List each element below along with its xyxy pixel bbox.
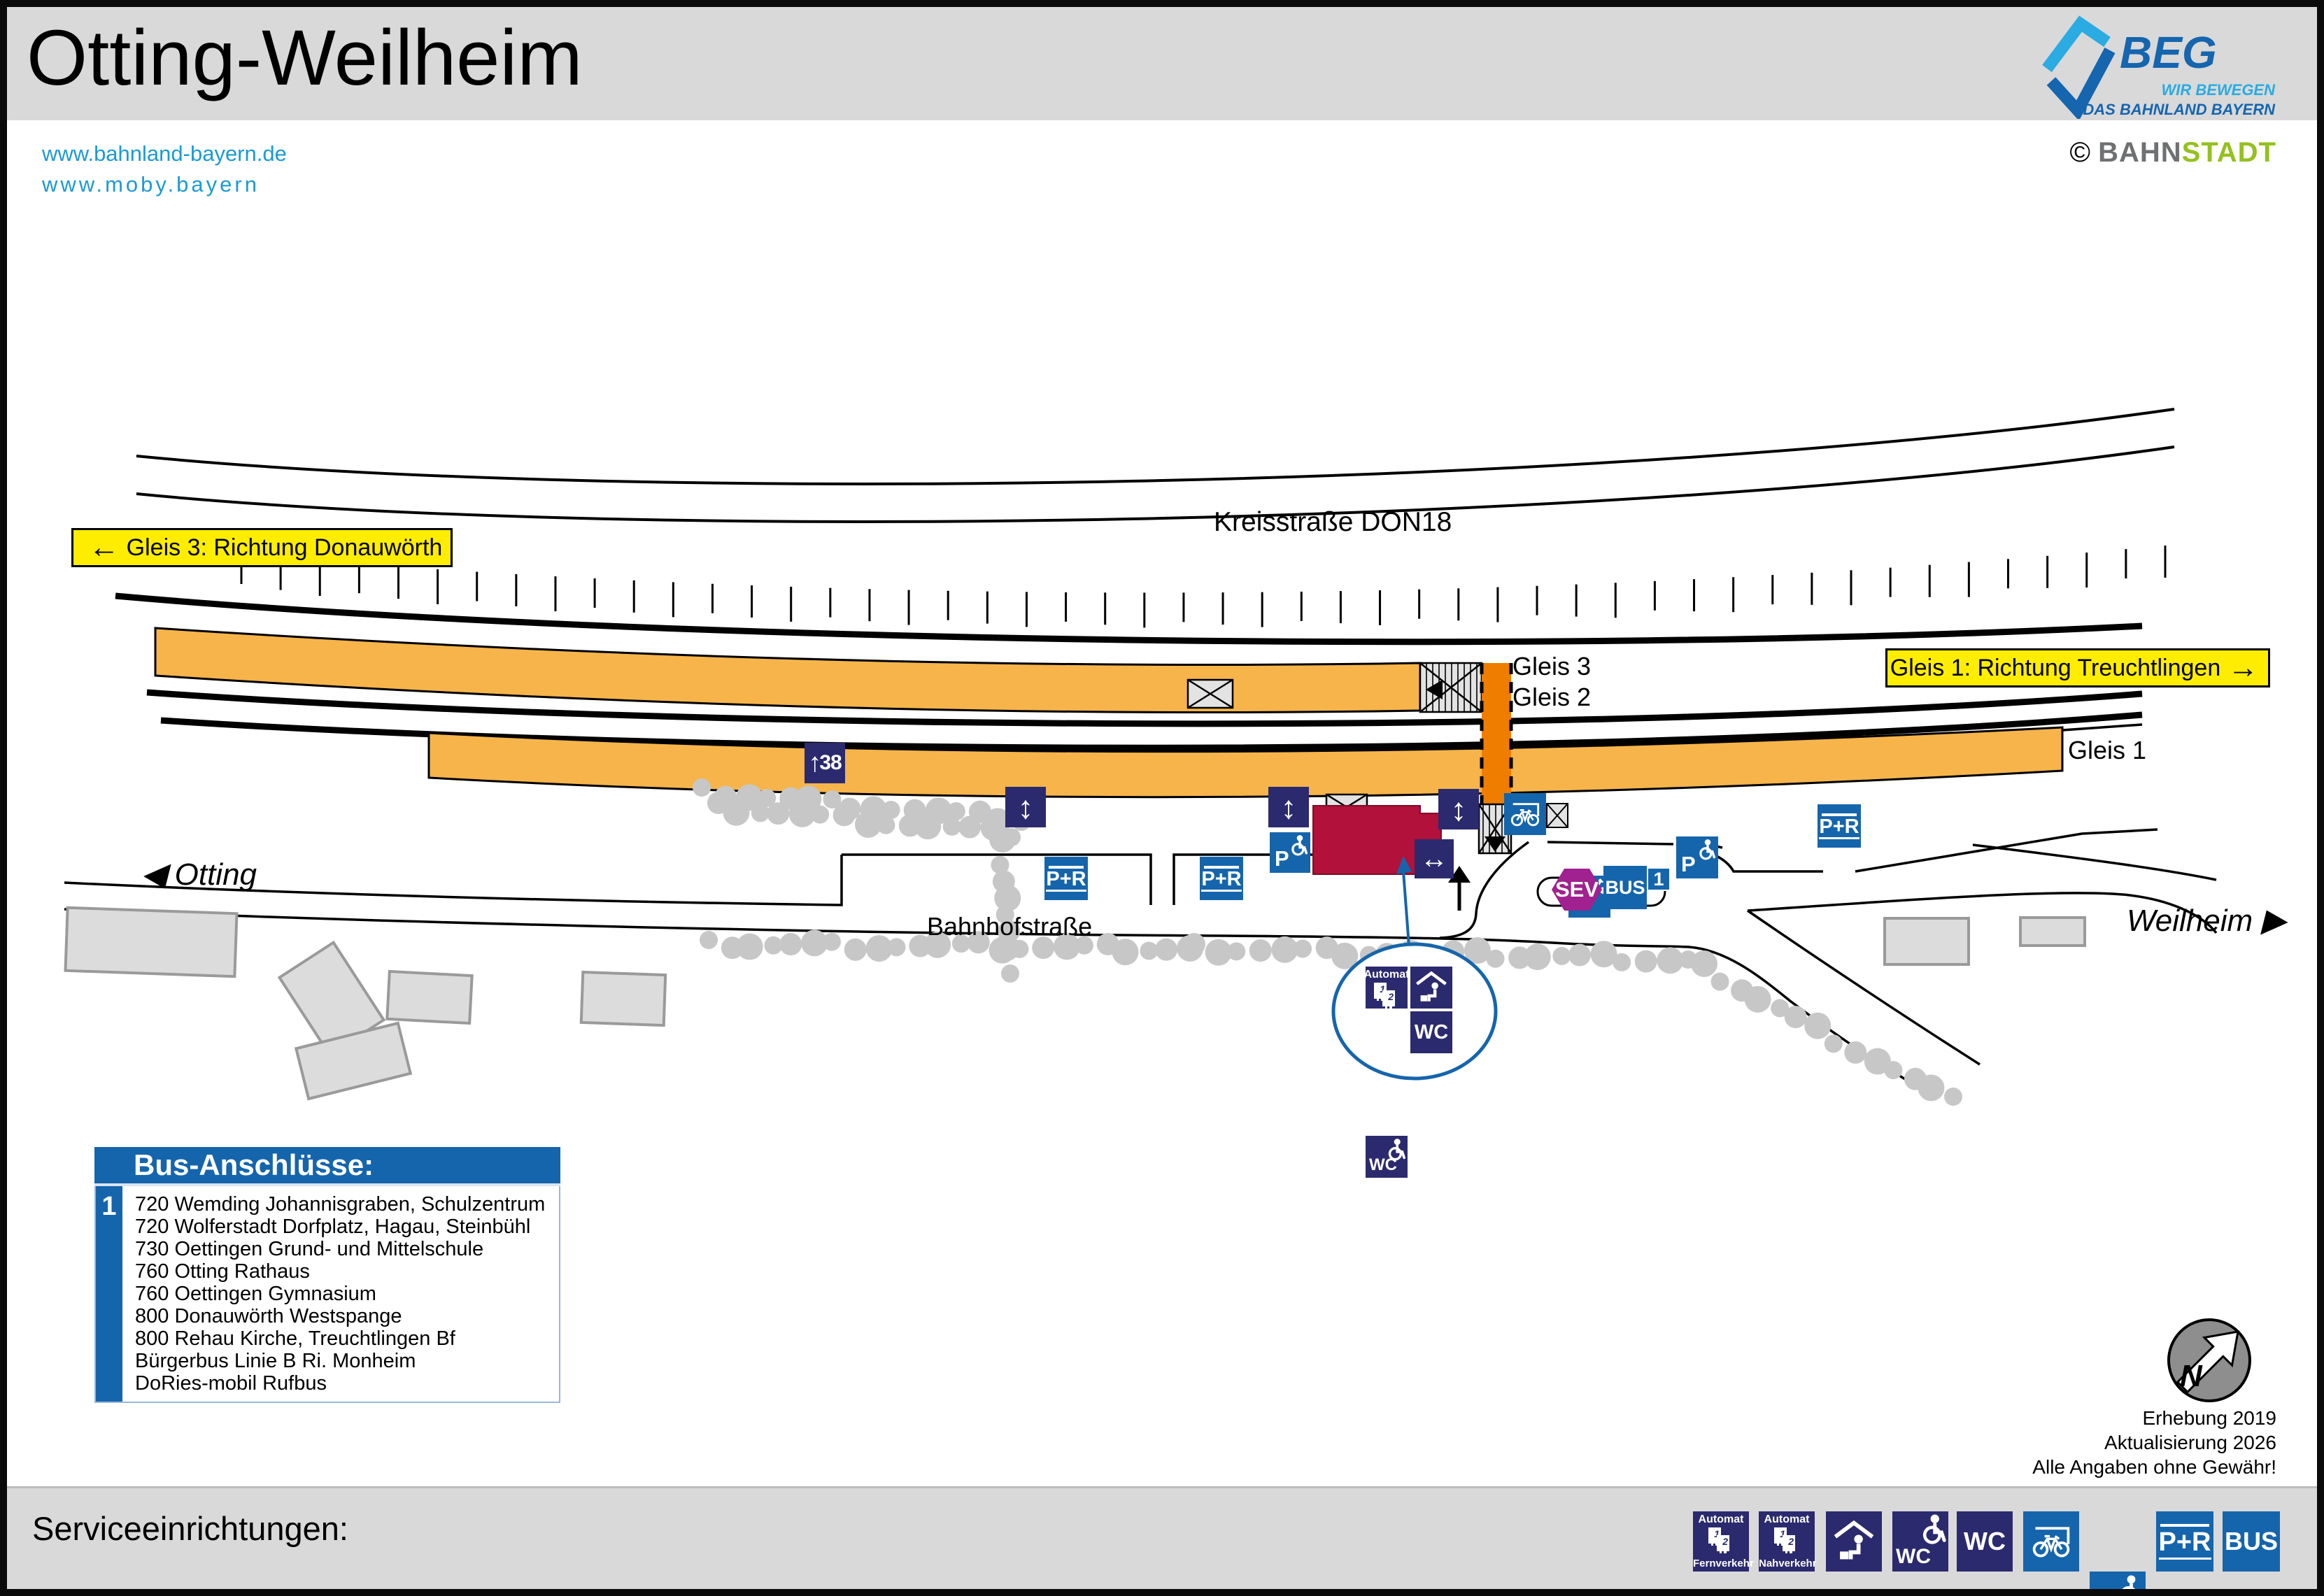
weilheim-arrow-icon: ▶ (2261, 902, 2286, 938)
ticket-machine-icon: Automat 12 (1366, 967, 1408, 1009)
note-line: Aktualisierung 2026 (2032, 1430, 2276, 1455)
wc-accessible-icon: WC (1366, 1136, 1408, 1178)
right-arrow-icon: → (2227, 650, 2258, 685)
survey-notes: Erhebung 2019 Aktualisierung 2026 Alle A… (2032, 1406, 2276, 1479)
wheelchair-icon (1694, 839, 1716, 861)
bike-parking-icon (1504, 793, 1546, 835)
place-otting: ◀ Otting (141, 855, 257, 892)
direction-sign-treuchtlingen: Gleis 1: Richtung Treuchtlingen → (1885, 648, 2270, 687)
pr-sign: P+R (1200, 857, 1243, 900)
bus-stop-icon: BUS (1603, 866, 1647, 909)
platform-access-icon: ↕ (1268, 787, 1309, 827)
waiting-person-icon (1415, 971, 1448, 1004)
bicycle-icon (2030, 1524, 2072, 1559)
bicycle-icon (1509, 801, 1541, 827)
platform-access-icon: ↕ (1438, 789, 1479, 829)
platform-height-38-icon: ↑38 (805, 743, 845, 783)
wc-accessible-icon: WC (1892, 1511, 1948, 1572)
left-arrow-icon: ← (89, 530, 120, 565)
passage-icon: ↔ (1415, 839, 1454, 878)
bus-line: 800 Donauwörth Westspange (135, 1305, 552, 1327)
waiting-person-icon (1832, 1520, 1876, 1563)
waiting-area-icon (1410, 967, 1452, 1009)
pr-sign: P+R (1044, 857, 1088, 900)
bus-line: 760 Otting Rathaus (135, 1260, 552, 1283)
otting-arrow-icon: ◀ (141, 855, 166, 892)
gleis1-label: Gleis 1 (2068, 736, 2146, 765)
platform-access-icon: ↕ (1005, 787, 1046, 827)
ticket-machine-longdistance-icon: Automat 12 Fernverkehr (1693, 1511, 1749, 1572)
note-line: Erhebung 2019 (2032, 1406, 2276, 1430)
direction-sign-donauwoerth: ← Gleis 3: Richtung Donauwörth (71, 528, 453, 567)
bus-stop-number: 1 (96, 1186, 122, 1402)
bus-connections-box: Bus-Anschlüsse: 1 720 Wemding Johannisgr… (94, 1147, 560, 1403)
bus-stop-number-badge: 1 (1647, 867, 1671, 891)
shelter-icon (1188, 680, 1233, 708)
kreisstrasse-road (136, 409, 2174, 522)
bus-line: 760 Oettingen Gymnasium (135, 1283, 552, 1305)
bahnhofstrasse-label: Bahnhofstraße (927, 912, 1092, 941)
accessible-parking-icon: P (1676, 836, 1718, 878)
bus-line: DoRies-mobil Rufbus (135, 1372, 552, 1395)
station-plan-page: Otting-Weilheim BEG WIR BEWEGEN DAS BAHN… (0, 0, 2324, 1596)
ticket-machine-local-icon: Automat 12 Nahverkehr (1759, 1511, 1815, 1572)
bus-connections-list: 720 Wemding Johannisgraben, Schulzentrum… (96, 1186, 559, 1402)
wc-icon: WC (1957, 1511, 2013, 1572)
bus-line: Bürgerbus Linie B Ri. Monheim (135, 1350, 552, 1372)
note-line: Alle Angaben ohne Gewähr! (2032, 1455, 2276, 1479)
bus-connections-title: Bus-Anschlüsse: (94, 1147, 560, 1186)
north-letter: N (2180, 1359, 2203, 1393)
accessible-parking-icon: P (2090, 1572, 2146, 1596)
north-compass-icon: N (2169, 1318, 2252, 1401)
wheelchair-icon (1382, 1138, 1406, 1162)
service-bar-title: Serviceeinrichtungen: (32, 1509, 348, 1548)
bus-line: 720 Wemding Johannisgraben, Schulzentrum (135, 1193, 552, 1216)
bike-parking-icon (2023, 1511, 2079, 1572)
waiting-area-icon (1826, 1511, 1882, 1572)
wheelchair-icon (1286, 834, 1308, 857)
kreisstrasse-label: Kreisstraße DON18 (1214, 507, 1452, 538)
pr-sign: P+R (1818, 804, 1861, 848)
bus-icon: BUS (2223, 1511, 2280, 1572)
pr-icon: P+R (2156, 1511, 2213, 1572)
place-weilheim: Weilheim ▶ (2127, 901, 2286, 939)
shelter-icon (1546, 803, 1568, 828)
bus-line: 720 Wolferstadt Dorfplatz, Hagau, Steinb… (135, 1216, 552, 1238)
bus-line: 730 Oettingen Grund- und Mittelschule (135, 1238, 552, 1260)
track-gleis3 (115, 596, 2142, 642)
wc-icon: WC (1410, 1011, 1452, 1053)
bus-line: 800 Rehau Kirche, Treuchtlingen Bf (135, 1327, 552, 1350)
fence-ticks (241, 546, 2165, 627)
gleis2-label: Gleis 2 (1512, 683, 1591, 712)
wheelchair-icon (2112, 1574, 2143, 1596)
accessible-parking-icon: P (1270, 832, 1310, 873)
service-legend: Automat 12 Fernverkehr Automat 12 Nahver… (7, 1511, 63, 1572)
wheelchair-icon (1915, 1513, 1947, 1546)
gleis3-label: Gleis 3 (1512, 652, 1591, 681)
